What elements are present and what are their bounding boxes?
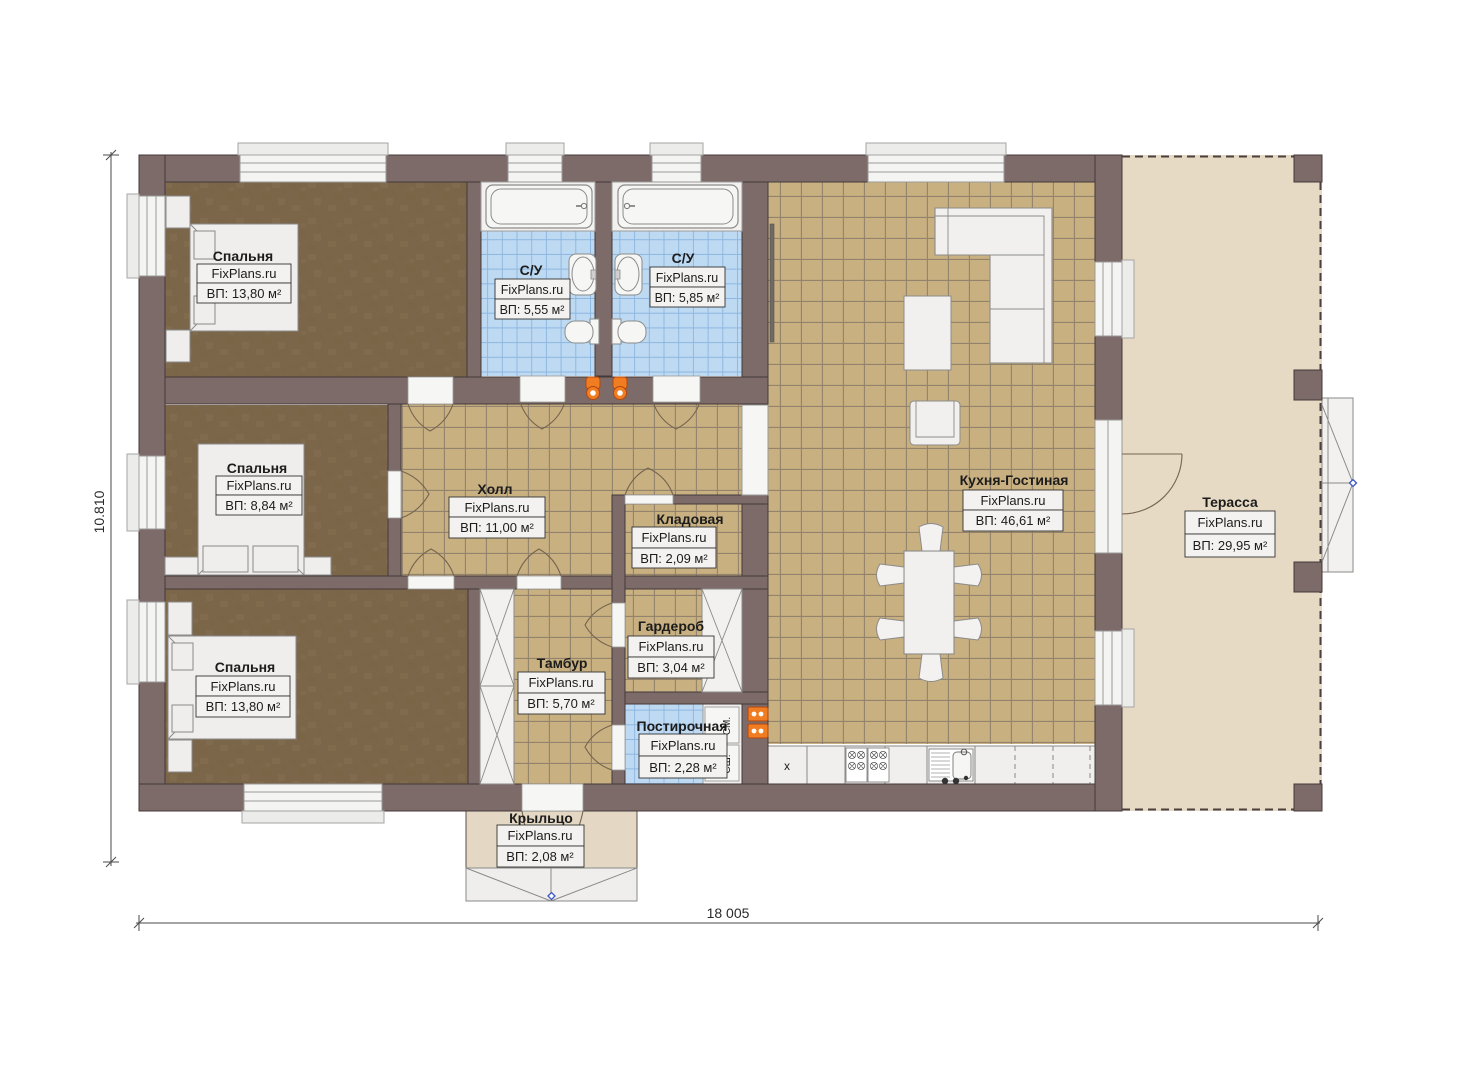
svg-text:FixPlans.ru: FixPlans.ru: [638, 639, 703, 654]
svg-text:С/У: С/У: [672, 250, 695, 266]
svg-text:FixPlans.ru: FixPlans.ru: [528, 675, 593, 690]
svg-text:С/У: С/У: [520, 262, 543, 278]
svg-text:FixPlans.ru: FixPlans.ru: [1197, 515, 1262, 530]
svg-text:ВП: 46,61 м²: ВП: 46,61 м²: [976, 513, 1051, 528]
svg-text:ВП: 8,84 м²: ВП: 8,84 м²: [225, 498, 293, 513]
svg-text:Спальня: Спальня: [213, 248, 273, 264]
svg-text:FixPlans.ru: FixPlans.ru: [464, 500, 529, 515]
svg-text:Кладовая: Кладовая: [656, 511, 723, 527]
svg-text:Спальня: Спальня: [215, 659, 275, 675]
svg-text:x: x: [784, 759, 790, 773]
svg-text:Крыльцо: Крыльцо: [509, 810, 573, 826]
svg-text:Холл: Холл: [477, 481, 512, 497]
svg-text:Постирочная: Постирочная: [637, 718, 728, 734]
svg-text:18 005: 18 005: [707, 905, 750, 921]
svg-text:ВП: 5,55 м²: ВП: 5,55 м²: [500, 303, 565, 317]
svg-text:ВП: 3,04 м²: ВП: 3,04 м²: [637, 660, 705, 675]
svg-text:Гардероб: Гардероб: [638, 618, 705, 634]
svg-text:Терасса: Терасса: [1202, 494, 1258, 510]
svg-text:ВП: 5,70 м²: ВП: 5,70 м²: [527, 696, 595, 711]
svg-text:10.810: 10.810: [91, 490, 107, 533]
svg-text:ВП: 13,80 м²: ВП: 13,80 м²: [207, 286, 282, 301]
svg-text:ВП: 2,09 м²: ВП: 2,09 м²: [640, 551, 708, 566]
svg-text:FixPlans.ru: FixPlans.ru: [641, 530, 706, 545]
svg-text:Спальня: Спальня: [227, 460, 287, 476]
svg-text:FixPlans.ru: FixPlans.ru: [980, 493, 1045, 508]
svg-text:Кухня-Гостиная: Кухня-Гостиная: [960, 472, 1069, 488]
svg-text:FixPlans.ru: FixPlans.ru: [656, 271, 719, 285]
svg-text:FixPlans.ru: FixPlans.ru: [210, 679, 275, 694]
svg-text:ВП: 5,85 м²: ВП: 5,85 м²: [655, 291, 720, 305]
svg-text:Тамбур: Тамбур: [537, 655, 588, 671]
svg-text:ВП: 2,28 м²: ВП: 2,28 м²: [649, 760, 717, 775]
svg-text:FixPlans.ru: FixPlans.ru: [211, 266, 276, 281]
svg-text:ВП: 2,08 м²: ВП: 2,08 м²: [506, 849, 574, 864]
svg-text:ВП: 11,00 м²: ВП: 11,00 м²: [460, 520, 534, 535]
svg-text:FixPlans.ru: FixPlans.ru: [507, 828, 572, 843]
svg-text:FixPlans.ru: FixPlans.ru: [226, 478, 291, 493]
svg-text:FixPlans.ru: FixPlans.ru: [501, 283, 564, 297]
svg-text:ВП: 13,80 м²: ВП: 13,80 м²: [206, 699, 281, 714]
svg-text:FixPlans.ru: FixPlans.ru: [650, 738, 715, 753]
svg-text:ВП: 29,95 м²: ВП: 29,95 м²: [1193, 538, 1268, 553]
